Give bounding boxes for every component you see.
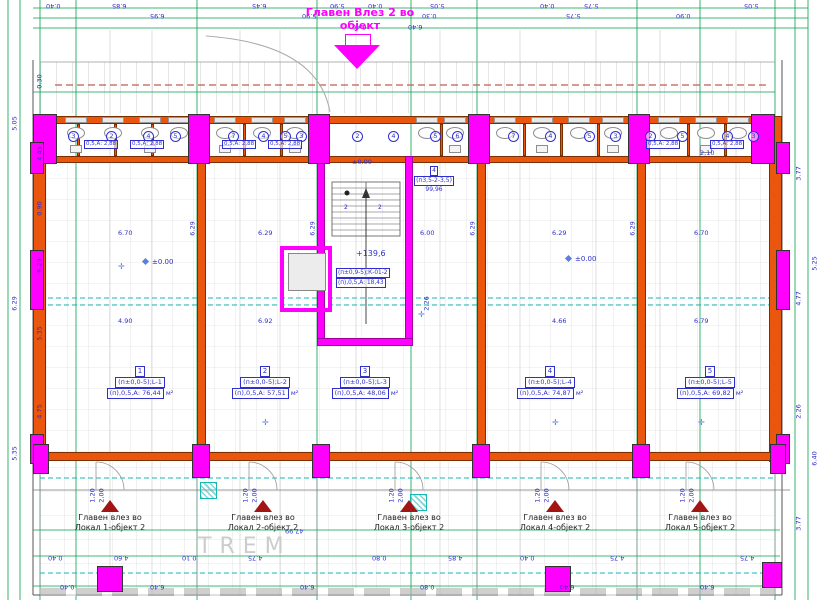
dimension-label: 0.80 <box>372 554 386 561</box>
dimension-label: 6.95 <box>150 12 164 19</box>
unit-number-badge: 5 <box>584 131 595 142</box>
dimension-label: 0.40 <box>48 554 62 561</box>
sink-icon <box>607 145 619 153</box>
center-cross-marker: ✛ <box>698 418 705 427</box>
partition-wall <box>687 124 690 156</box>
room-area: (п),0,5,А: 48,06 <box>332 388 389 399</box>
entrance-triangle-icon <box>101 500 119 512</box>
dimension-label: 6.79 <box>694 318 708 325</box>
core-room-label: (п±0,9-5);К-01-2 (п),0,5,А: 18,43 <box>336 268 390 288</box>
dimension-label: 6.70 <box>694 230 708 237</box>
partition-wall <box>560 124 563 156</box>
room-label: 1(п±0,0-5);L-1(п),0,5,А: 76,44 м² <box>85 366 195 399</box>
dimension-label: 6.40 <box>560 583 574 590</box>
dimension-label: 2.26 <box>424 296 431 310</box>
entrance-label: Главен влез воЛокал 1-објект 2 <box>40 513 180 533</box>
entrance-triangle-icon <box>400 500 418 512</box>
room-area-unit: м² <box>736 389 744 397</box>
wall-segment <box>40 452 775 461</box>
dimension-label: 6.29 <box>12 296 19 310</box>
entrance-label-line1: Главен влез во <box>193 513 333 523</box>
room-number: 1 <box>135 366 145 377</box>
dimension-label: 1,20 <box>90 488 97 502</box>
partition-wall <box>597 124 600 156</box>
column-marker <box>632 444 650 478</box>
dimension-label: 6.40 <box>150 583 164 590</box>
entrance-label-line1: Главен влез во <box>485 513 625 523</box>
window-symbol <box>695 117 717 123</box>
room-number: 5 <box>705 366 715 377</box>
dimension-label: 4.75 <box>248 554 262 561</box>
dimension-label: 0.30 <box>37 74 44 88</box>
window-symbol <box>727 117 749 123</box>
dimension-label: 0.40 <box>46 2 60 9</box>
entrance-label-line1: Главен влез во <box>630 513 770 523</box>
window-symbol <box>139 117 161 123</box>
dimension-label: 4.85 <box>448 554 462 561</box>
column-marker <box>468 114 490 164</box>
dimension-label: 5.25 <box>812 256 819 270</box>
dimension-label: 5.05 <box>12 116 19 130</box>
entrance-label-line2: Локал 3-објект 2 <box>339 523 479 533</box>
column-marker <box>770 444 786 474</box>
unit-number-badge: 6 <box>452 131 463 142</box>
main-entrance-title-line1: Главен Влез 2 во <box>290 6 430 19</box>
toilet-icon <box>660 127 678 139</box>
dimension-label: 0.90 <box>37 201 44 215</box>
sanitary-area-label: 0,5,А: 2,88 <box>646 140 680 149</box>
room-code: (п±0,0-5);L-3 <box>340 377 390 388</box>
dimension-label: 6.29 <box>470 221 477 235</box>
toilet-icon <box>697 127 715 139</box>
dimension-label: 5.75 <box>584 2 598 9</box>
column-marker <box>192 444 210 478</box>
main-entrance-title: Главен Влез 2 во објект <box>290 6 430 32</box>
dimension-label: 0.90 <box>676 12 690 19</box>
column-marker <box>762 562 782 588</box>
dimension-label: 0.80 <box>420 583 434 590</box>
sanitary-area-label: 0,5,А: 2,88 <box>710 140 744 149</box>
dimension-label: 6.40 <box>300 583 314 590</box>
elevation-marker: ±0.00 <box>143 258 173 266</box>
corridor-room-area: 99,96 <box>425 186 442 193</box>
room-area: (п),0,5,А: 76,44 <box>107 388 164 399</box>
sanitary-area-label: 0,5,А: 2,88 <box>130 140 164 149</box>
window-symbol <box>214 117 236 123</box>
dimension-label: 4.66 <box>552 318 566 325</box>
column-marker <box>308 114 330 164</box>
dimension-label: 5.05 <box>744 2 758 9</box>
unit-number-badge: 3 <box>748 131 759 142</box>
dimension-label: 0.10 <box>182 554 196 561</box>
column-marker <box>776 250 790 310</box>
dimension-label: 2.26 <box>796 404 803 418</box>
window-symbol <box>251 117 273 123</box>
dimension-label: 6.92 <box>258 318 272 325</box>
column-marker <box>776 142 790 174</box>
unit-number-badge: 7 <box>508 131 519 142</box>
dimension-label: 6.29 <box>190 221 197 235</box>
floor-plan-canvas: Главен Влез 2 во објект ±0.00 +139,6 (п±… <box>0 0 820 600</box>
column-marker <box>472 444 490 478</box>
dimension-label: 6.40 <box>700 583 714 590</box>
stair-street-elevation: ±0.00 <box>352 158 372 166</box>
dimension-label: 3.77 <box>796 166 803 180</box>
main-entrance-title-line2: објект <box>290 19 430 32</box>
entrance-label-line2: Локал 1-објект 2 <box>40 523 180 533</box>
center-cross-marker: ✛ <box>552 418 559 427</box>
corridor-room-number: 4 <box>430 166 438 176</box>
stair-flight-number: 2 <box>378 204 382 211</box>
window-symbol <box>444 117 466 123</box>
entrance-triangle-icon <box>254 500 272 512</box>
entrance-label-line1: Главен влез во <box>40 513 180 523</box>
column-marker <box>97 566 123 592</box>
elevation-diamond-icon <box>565 255 572 262</box>
entrance-label-line2: Локал 2-објект 2 <box>193 523 333 533</box>
unit-number-badge: 3 <box>68 131 79 142</box>
entrance-label-line2: Локал 4-објект 2 <box>485 523 625 533</box>
dimension-label: 0.40 <box>540 2 554 9</box>
center-cross-marker: ✛ <box>418 310 425 319</box>
room-code: (п±0,0-5);L-2 <box>240 377 290 388</box>
entrance-label-line2: Локал 5-објект 2 <box>630 523 770 533</box>
stair-landing-elevation: +139,6 <box>356 249 386 258</box>
elevation-diamond-icon <box>142 258 149 265</box>
partition-wall <box>440 124 443 156</box>
dimension-label: 5.05 <box>430 2 444 9</box>
dimension-label: 1,20 <box>680 488 687 502</box>
room-label: 2(п±0,0-5);L-2(п),0,5,А: 57,51 м² <box>210 366 320 399</box>
sanitary-area-label: 0,5,А: 2,88 <box>84 140 118 149</box>
wall-segment <box>637 163 646 452</box>
unit-number-badge: 4 <box>388 131 399 142</box>
room-code: (п±0,0-5);L-5 <box>685 377 735 388</box>
room-label: 5(п±0,0-5);L-5(п),0,5,А: 69,82 м² <box>655 366 765 399</box>
dimension-label: 6.29 <box>310 221 317 235</box>
room-area: (п),0,5,А: 74,87 <box>517 388 574 399</box>
sanitary-area-label: 0,5,А: 2,88 <box>268 140 302 149</box>
dimension-label: 0.40 <box>520 554 534 561</box>
dimension-label: 5.75 <box>566 12 580 19</box>
dimension-label: 6.70 <box>118 230 132 237</box>
dimension-label: 4.75 <box>610 554 624 561</box>
dimension-label: 6.29 <box>552 230 566 237</box>
center-cross-marker: ✛ <box>118 262 125 271</box>
window-symbol <box>658 117 680 123</box>
sink-icon <box>449 145 461 153</box>
dimension-label: 5.35 <box>12 446 19 460</box>
room-number: 4 <box>545 366 555 377</box>
unit-number-badge: 5 <box>430 131 441 142</box>
dimension-label: 6.29 <box>630 221 637 235</box>
window-symbol <box>531 117 553 123</box>
entrance-label: Главен влез воЛокал 2-објект 2 <box>193 513 333 533</box>
dimension-label: 4.60 <box>114 554 128 561</box>
dimension-label: 1,20 <box>243 488 250 502</box>
dimension-label: 4.75 <box>740 554 754 561</box>
dimension-label: 6.00 <box>420 230 434 237</box>
dimension-label: 6.29 <box>258 230 272 237</box>
unit-number-badge: 3 <box>610 131 621 142</box>
dimension-label: 4.75 <box>37 404 44 418</box>
window-symbol <box>65 117 87 123</box>
sink-icon <box>70 145 82 153</box>
entrance-label: Главен влез воЛокал 4-објект 2 <box>485 513 625 533</box>
sink-icon <box>536 145 548 153</box>
window-symbol <box>568 117 590 123</box>
dimension-label: 6.45 <box>252 2 266 9</box>
dimension-label: 1,20 <box>389 488 396 502</box>
core-room-code: (п±0,9-5);К-01-2 <box>336 268 390 278</box>
room-area: (п),0,5,А: 57,51 <box>232 388 289 399</box>
dimension-label: 2,10 <box>700 150 714 157</box>
room-code: (п±0,0-5);L-4 <box>525 377 575 388</box>
elevator-shaft <box>288 253 326 291</box>
window-symbol <box>284 117 306 123</box>
dimension-label: 0.40 <box>60 583 74 590</box>
corridor-room-code: (п3,5-2-3,5) <box>414 176 454 186</box>
room-label: 3(п±0,0-5);L-3(п),0,5,А: 48,06 м² <box>310 366 420 399</box>
corridor-room-label: 4 (п3,5-2-3,5) 99,96 <box>412 166 456 194</box>
room-area-unit: м² <box>391 389 399 397</box>
center-cross-marker: ✛ <box>262 418 269 427</box>
entrance-arrow-icon <box>334 45 380 69</box>
dimension-label: 4.77 <box>796 291 803 305</box>
dimension-label: 6.85 <box>112 2 126 9</box>
dimension-label: 4.90 <box>118 318 132 325</box>
column-marker <box>312 444 330 478</box>
porch-label: TREM <box>198 534 292 559</box>
wall-segment <box>197 163 206 452</box>
window-symbol <box>416 117 438 123</box>
column-marker <box>188 114 210 164</box>
entrance-label: Главен влез воЛокал 5-објект 2 <box>630 513 770 533</box>
dimension-label: 1,20 <box>535 488 542 502</box>
dimension-label: 6.29 <box>37 258 44 272</box>
entrance-triangle-icon <box>691 500 709 512</box>
room-label: 4(п±0,0-5);L-4(п),0,5,А: 74,87 м² <box>495 366 605 399</box>
stair-flight-number: 2 <box>344 204 348 211</box>
service-box-icon <box>200 482 217 499</box>
entrance-label-line1: Главен влез во <box>339 513 479 523</box>
room-area-unit: м² <box>166 389 174 397</box>
stair-core-wall <box>317 338 413 346</box>
window-symbol <box>494 117 516 123</box>
room-area-unit: м² <box>291 389 299 397</box>
window-symbol <box>168 117 190 123</box>
core-room-area: (п),0,5,А: 18,43 <box>336 278 386 288</box>
dimension-label: 3.77 <box>796 516 803 530</box>
elevation-marker: ±0.00 <box>566 255 596 263</box>
entrance-triangle-icon <box>546 500 564 512</box>
room-number: 3 <box>360 366 370 377</box>
unit-number-badge: 5 <box>170 131 181 142</box>
dimension-label: 6.40 <box>812 451 819 465</box>
elevation-value: ±0.00 <box>152 258 173 266</box>
dimension-label: 4.45 <box>37 146 44 160</box>
room-code: (п±0,0-5);L-1 <box>115 377 165 388</box>
unit-number-badge: 4 <box>545 131 556 142</box>
partition-wall <box>523 124 526 156</box>
room-area-unit: м² <box>576 389 584 397</box>
sanitary-area-label: 0,5,А: 2,88 <box>222 140 256 149</box>
entrance-label: Главен влез воЛокал 3-објект 2 <box>339 513 479 533</box>
wall-segment <box>477 163 486 452</box>
room-area: (п),0,5,А: 69,82 <box>677 388 734 399</box>
window-symbol <box>102 117 124 123</box>
room-number: 2 <box>260 366 270 377</box>
elevation-value: ±0.00 <box>575 255 596 263</box>
window-symbol <box>602 117 624 123</box>
unit-number-badge: 2 <box>352 131 363 142</box>
column-marker <box>33 444 49 474</box>
dimension-label: 5.35 <box>37 326 44 340</box>
